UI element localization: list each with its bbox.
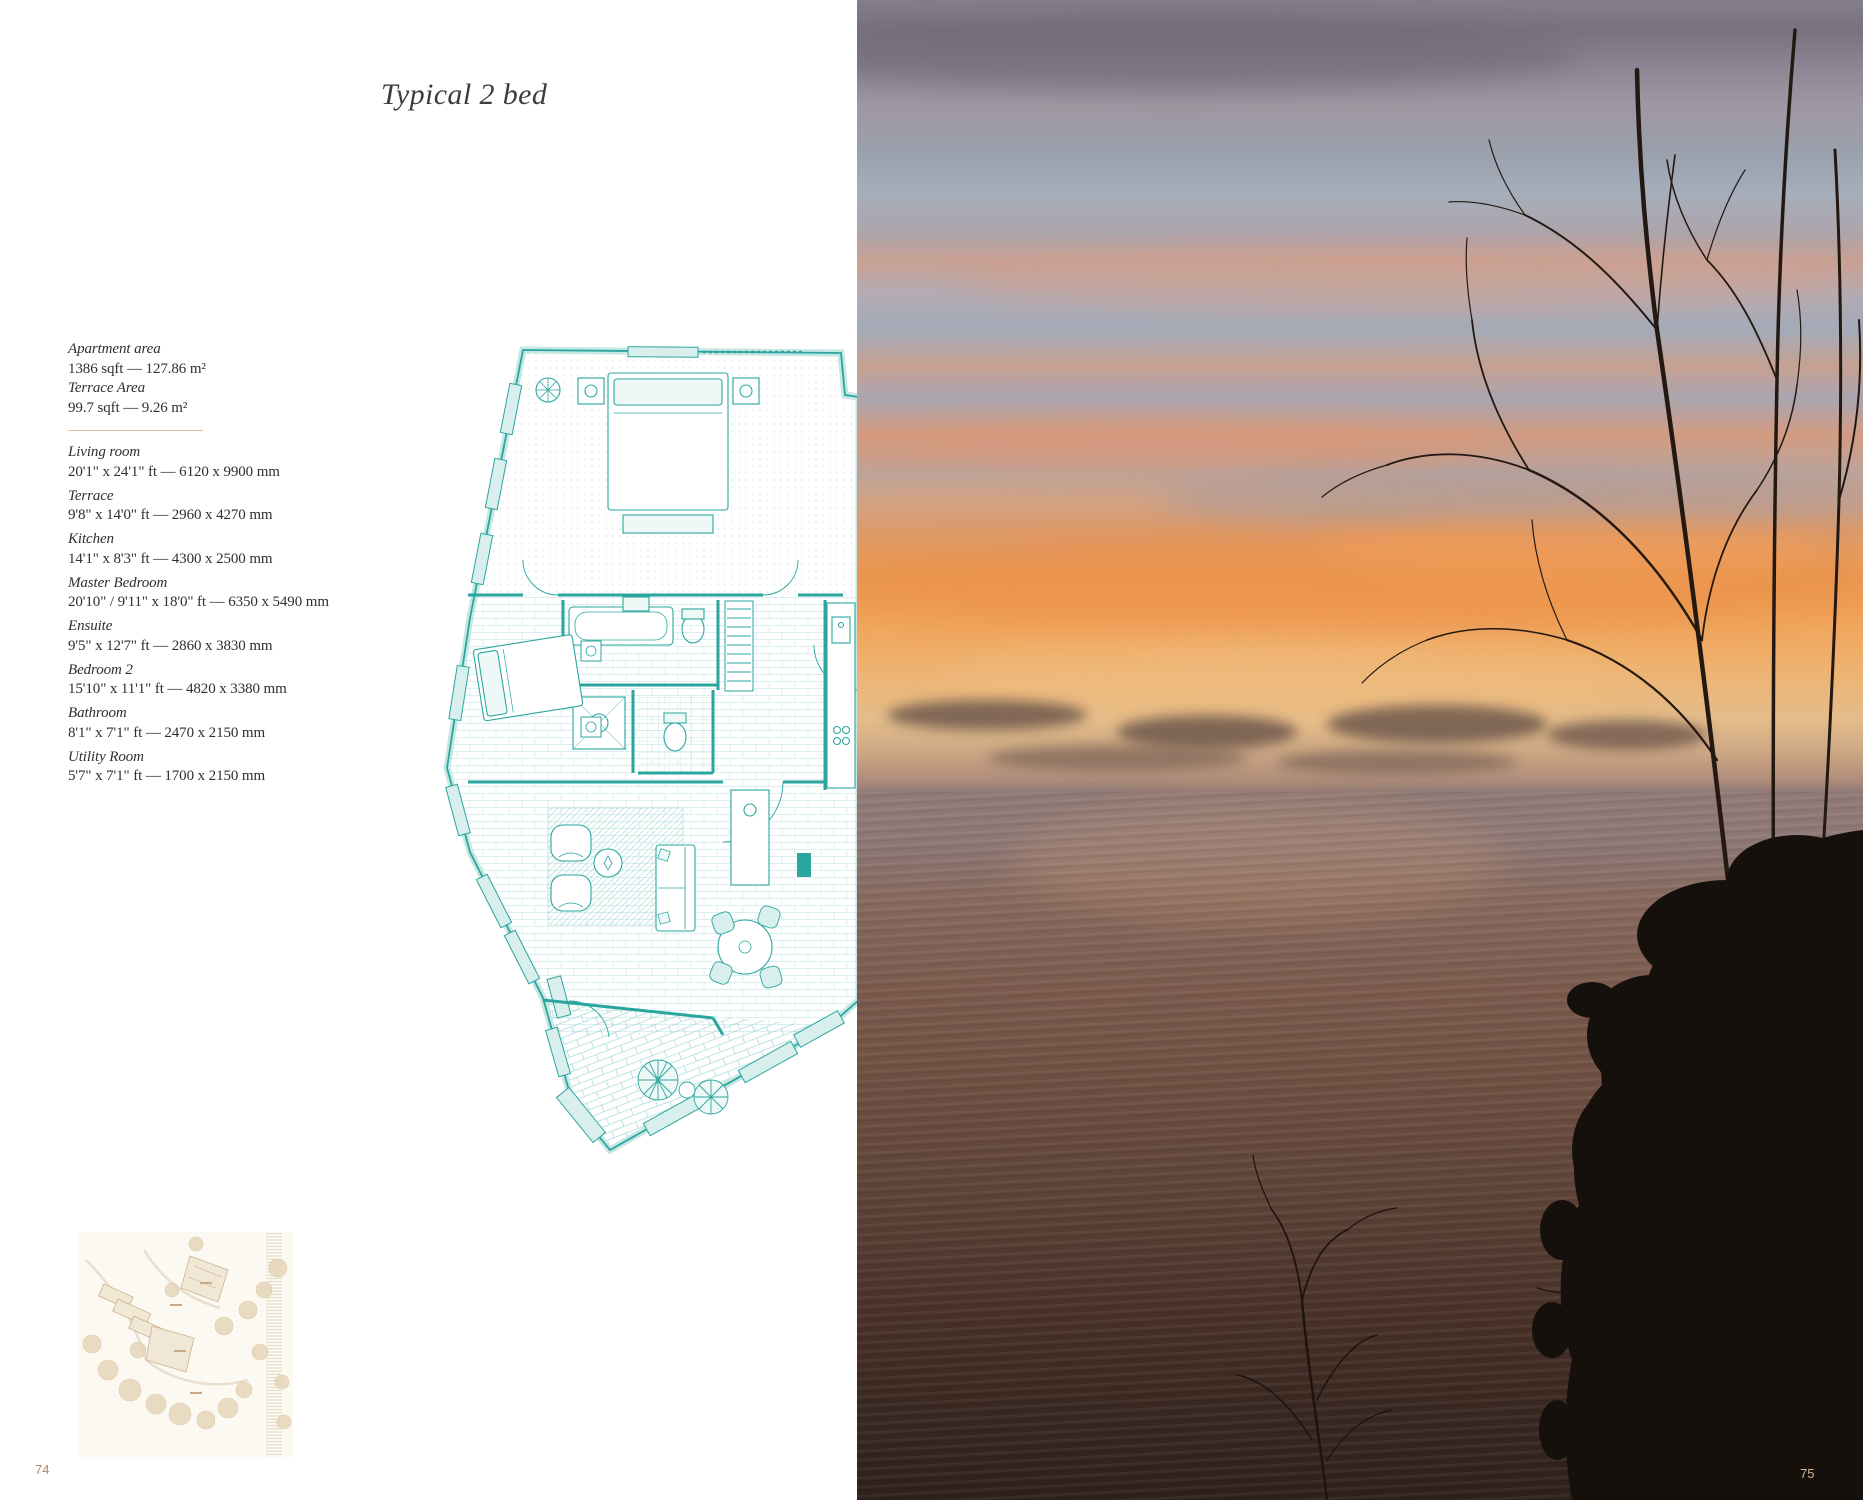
room-label: Bedroom 2 xyxy=(68,661,368,681)
room-label: Master Bedroom xyxy=(68,574,368,594)
room-row: Bedroom 2 15'10" x 11'1" ft — 4820 x 338… xyxy=(68,661,368,700)
room-label: Kitchen xyxy=(68,530,368,550)
area-label: Terrace Area xyxy=(68,379,368,399)
room-row: Kitchen 14'1" x 8'3" ft — 4300 x 2500 mm xyxy=(68,530,368,569)
area-row: Terrace Area 99.7 sqft — 9.26 m² xyxy=(68,379,368,418)
room-row: Utility Room 5'7" x 7'1" ft — 1700 x 215… xyxy=(68,748,368,787)
room-value: 9'5" x 12'7" ft — 2860 x 3830 mm xyxy=(68,637,368,657)
left-page: Typical 2 bed Apartment area 1386 sqft —… xyxy=(0,0,857,1500)
room-row: Bathroom 8'1" x 7'1" ft — 2470 x 2150 mm xyxy=(68,704,368,743)
room-row: Terrace 9'8" x 14'0" ft — 2960 x 4270 mm xyxy=(68,487,368,526)
brochure-spread: { "document": { "left_page": { "title": … xyxy=(0,0,1863,1500)
floor-plan-drawing xyxy=(373,345,865,1157)
area-value: 1386 sqft — 127.86 m² xyxy=(68,360,368,380)
room-row: Master Bedroom 20'10" / 9'11" x 18'0" ft… xyxy=(68,574,368,613)
room-label: Terrace xyxy=(68,487,368,507)
room-value: 8'1" x 7'1" ft — 2470 x 2150 mm xyxy=(68,724,368,744)
room-label: Ensuite xyxy=(68,617,368,637)
area-value: 99.7 sqft — 9.26 m² xyxy=(68,399,368,419)
area-row: Apartment area 1386 sqft — 127.86 m² xyxy=(68,340,368,379)
room-row: Living room 20'1" x 24'1" ft — 6120 x 99… xyxy=(68,443,368,482)
room-value: 20'1" x 24'1" ft — 6120 x 9900 mm xyxy=(68,463,368,483)
room-value: 14'1" x 8'3" ft — 4300 x 2500 mm xyxy=(68,550,368,570)
room-label: Living room xyxy=(68,443,368,463)
specs-divider xyxy=(68,430,203,431)
site-plan-drawing xyxy=(78,1232,293,1457)
room-value: 15'10" x 11'1" ft — 4820 x 3380 mm xyxy=(68,680,368,700)
room-label: Utility Room xyxy=(68,748,368,768)
page-number-right: 75 xyxy=(1800,1466,1814,1481)
evergreen-silhouette xyxy=(1532,830,1863,1500)
tree-silhouettes xyxy=(857,0,1863,1500)
living-room-furniture xyxy=(548,808,695,931)
specs-panel: Apartment area 1386 sqft — 127.86 m² Ter… xyxy=(68,340,368,791)
wardrobe xyxy=(725,601,753,691)
room-value: 20'10" / 9'11" x 18'0" ft — 6350 x 5490 … xyxy=(68,593,368,613)
room-row: Ensuite 9'5" x 12'7" ft — 2860 x 3830 mm xyxy=(68,617,368,656)
page-number-left: 74 xyxy=(35,1462,49,1477)
area-label: Apartment area xyxy=(68,340,368,360)
room-label: Bathroom xyxy=(68,704,368,724)
bathroom2 xyxy=(639,695,711,771)
page-title: Typical 2 bed xyxy=(381,78,547,112)
sunset-photo: 75 xyxy=(857,0,1863,1500)
foreground-bush xyxy=(1237,1155,1397,1500)
room-value: 9'8" x 14'0" ft — 2960 x 4270 mm xyxy=(68,506,368,526)
room-value: 5'7" x 7'1" ft — 1700 x 2150 mm xyxy=(68,767,368,787)
